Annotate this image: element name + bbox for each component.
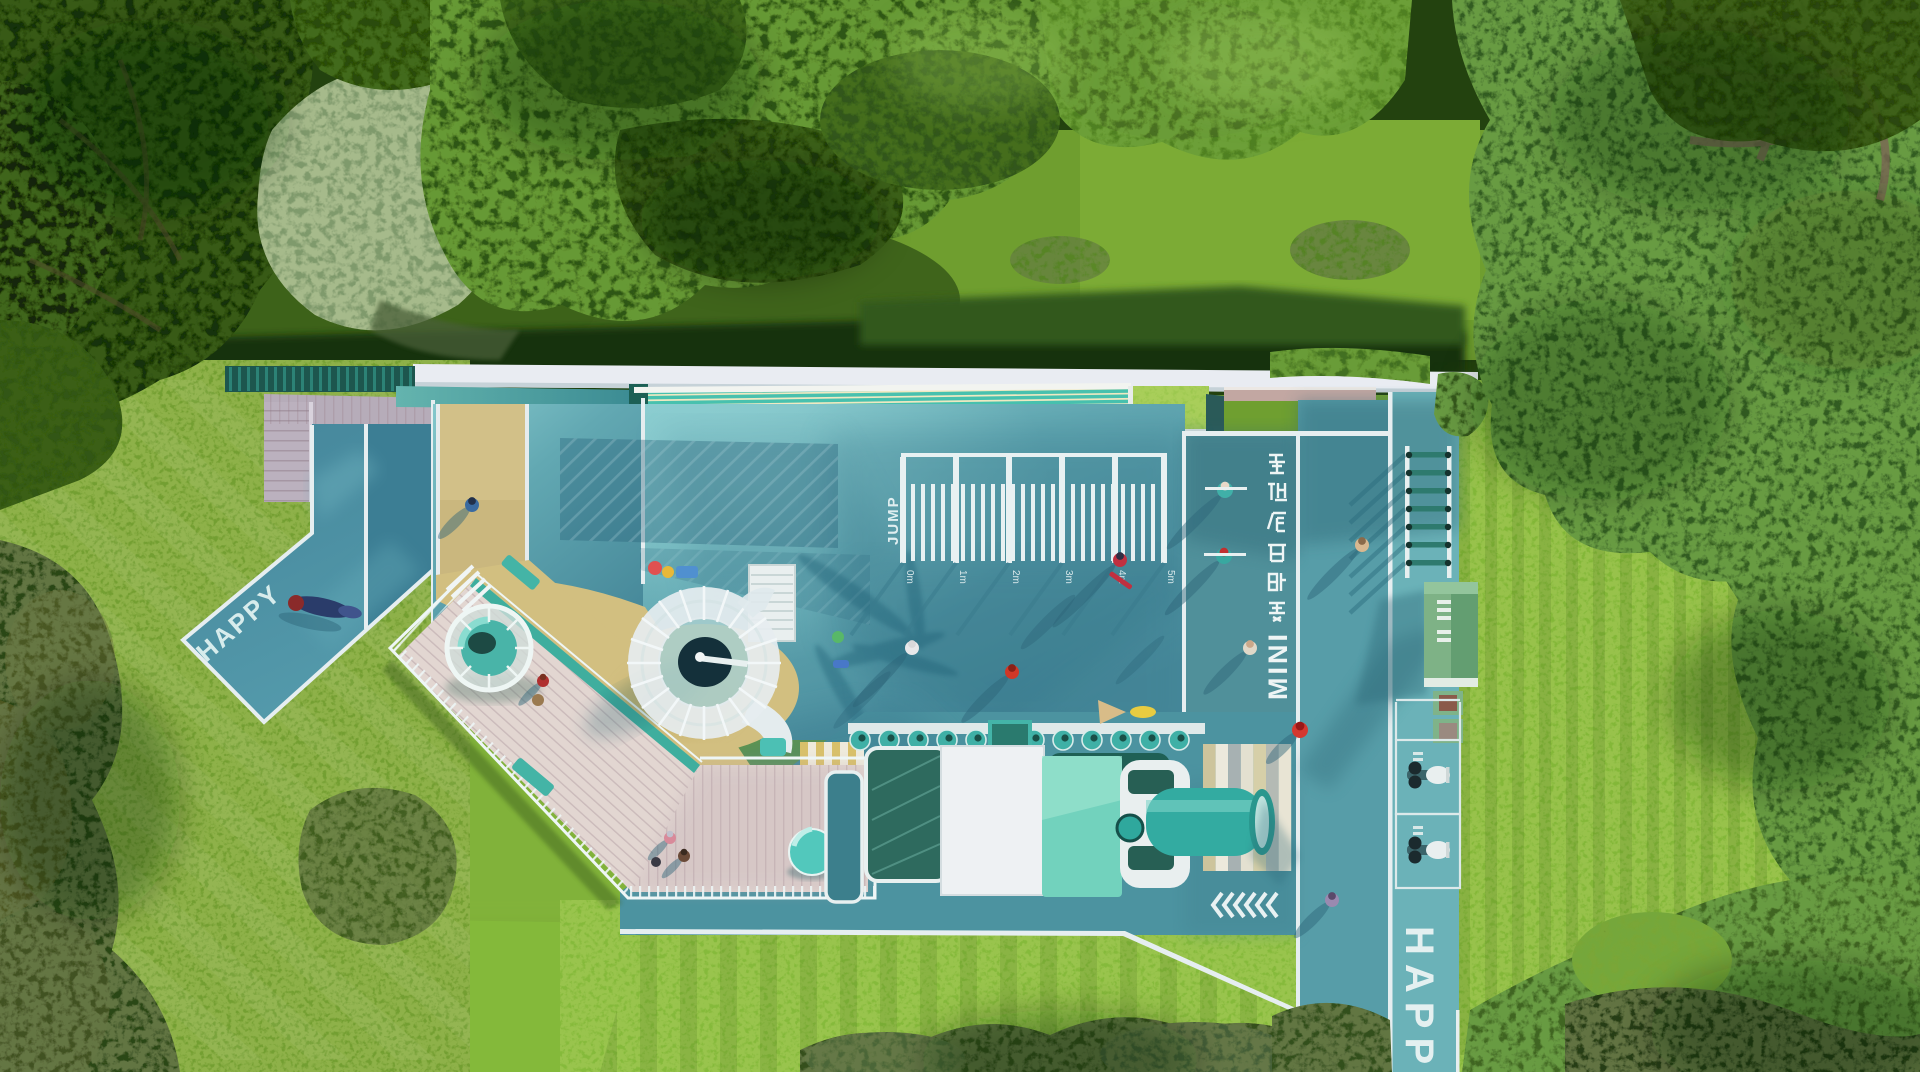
svg-text:MINI: MINI	[1263, 631, 1293, 700]
svg-text:5m: 5m	[1165, 570, 1176, 584]
svg-text:0m: 0m	[904, 570, 915, 584]
svg-text:JUMP: JUMP	[885, 495, 902, 545]
svg-text:2m: 2m	[1010, 570, 1021, 584]
svg-text:3m: 3m	[1063, 570, 1074, 584]
svg-text:HAPPY: HAPPY	[1397, 926, 1441, 1072]
svg-text:1m: 1m	[957, 570, 968, 584]
